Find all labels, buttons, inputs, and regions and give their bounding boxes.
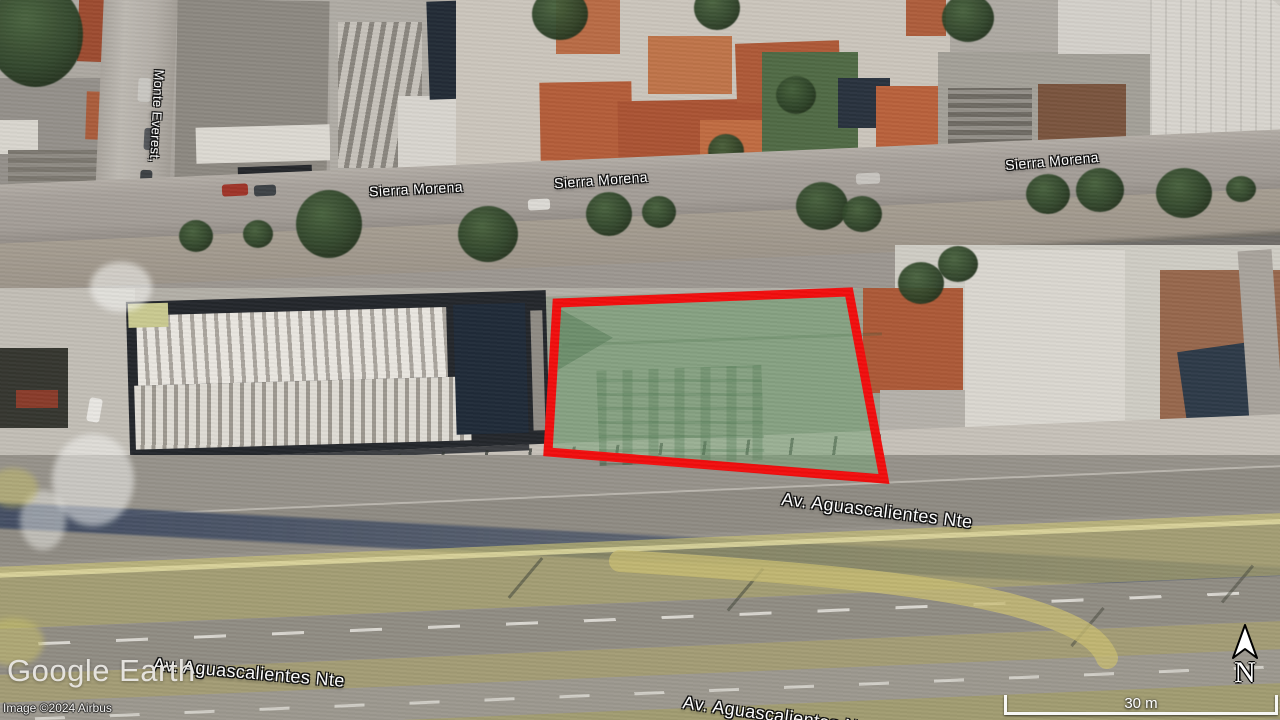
map-viewport[interactable]: Monte Everest,Sierra MorenaSierra Morena… <box>0 0 1280 720</box>
street-label-sierra-morena-1: Sierra Morena <box>369 179 464 200</box>
street-label-monte-everest: Monte Everest, <box>147 69 167 163</box>
google-earth-logo: Google Earth <box>7 653 196 689</box>
street-label-sierra-morena-2: Sierra Morena <box>554 169 649 192</box>
street-labels-layer: Monte Everest,Sierra MorenaSierra Morena… <box>0 0 1280 720</box>
north-label: N <box>1226 656 1264 690</box>
scale-bar-label: 30 m <box>1007 695 1275 712</box>
street-label-av-aguascalientes-bottom: Av. Aguascalientes Nte <box>681 692 874 720</box>
copyright-text: Image ©2024 Airbus <box>3 701 112 715</box>
street-label-sierra-morena-3: Sierra Morena <box>1005 149 1100 173</box>
street-label-av-aguascalientes-mid: Av. Aguascalientes Nte <box>780 489 973 533</box>
north-arrow[interactable]: N <box>1226 624 1264 696</box>
north-arrow-icon <box>1230 624 1260 660</box>
scale-bar: 30 m <box>1004 695 1278 715</box>
